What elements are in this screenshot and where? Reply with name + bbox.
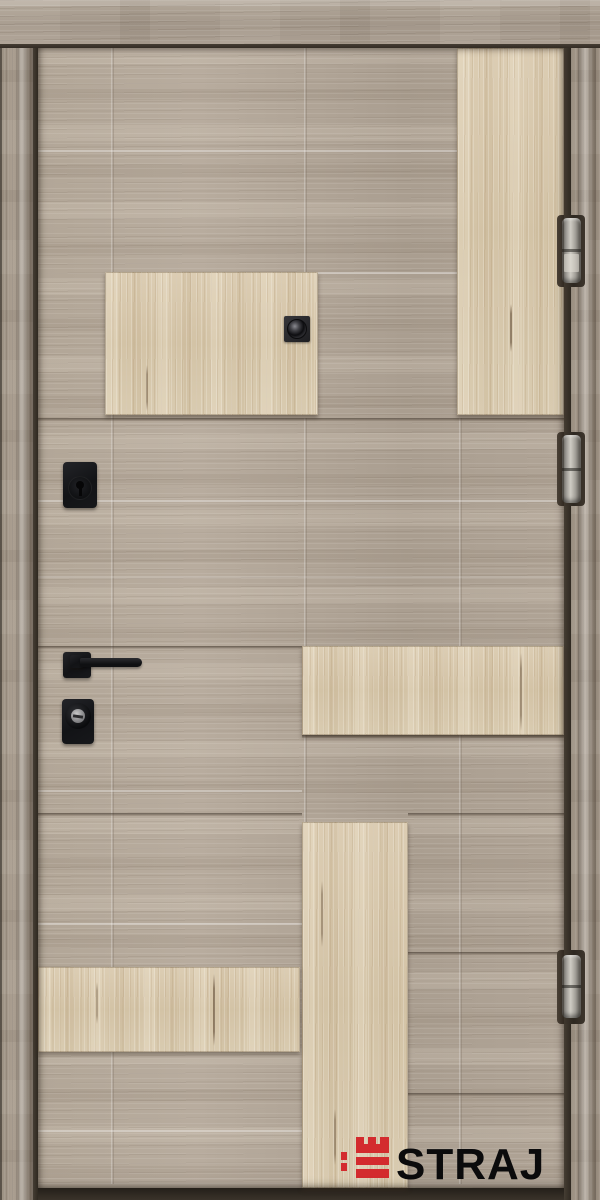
wood-crack xyxy=(146,365,148,411)
panel-groove xyxy=(304,418,307,646)
panel-groove xyxy=(459,418,462,646)
door-frame-top xyxy=(0,0,600,44)
panel-groove xyxy=(304,48,307,272)
castle-tick xyxy=(341,1163,347,1171)
hinge-middle xyxy=(562,435,581,503)
wood-crack xyxy=(321,881,323,947)
logo-text: STRAJ xyxy=(396,1143,545,1187)
threshold-shadow xyxy=(38,1188,564,1200)
hinge-seam xyxy=(562,985,581,988)
panel-groove xyxy=(304,735,307,822)
hinge-bottom xyxy=(562,955,581,1018)
wood-crack xyxy=(334,1109,336,1165)
castle-tick xyxy=(341,1152,347,1160)
deadbolt-escutcheon xyxy=(63,462,97,508)
keyhole-slot xyxy=(79,487,82,496)
castle-bar xyxy=(356,1144,389,1153)
peephole-lens xyxy=(287,319,307,339)
wood-crack xyxy=(520,653,522,731)
panel-groove xyxy=(38,500,564,502)
panel-groove xyxy=(38,418,564,421)
hinge-seam xyxy=(562,468,581,471)
brand-logo: STRAJ xyxy=(338,1134,564,1188)
panel-groove xyxy=(459,735,462,1184)
wood-crack xyxy=(213,974,215,1046)
panel-groove xyxy=(38,813,302,816)
accent-panel-top-right xyxy=(457,48,564,415)
panel-groove xyxy=(111,48,114,272)
cylinder-escutcheon xyxy=(62,699,94,744)
panel-groove xyxy=(111,1052,114,1184)
panel-groove xyxy=(302,735,564,738)
panel-groove xyxy=(38,150,457,152)
accent-panel-peephole xyxy=(105,272,318,415)
accent-panel-bottom-left xyxy=(38,967,300,1052)
hinge-top xyxy=(562,218,581,283)
door-photo: STRAJ xyxy=(0,0,600,1200)
panel-groove xyxy=(38,1130,302,1132)
panel-groove xyxy=(408,952,564,955)
panel-groove xyxy=(408,1093,564,1096)
peephole xyxy=(284,316,310,342)
panel-groove xyxy=(38,576,564,578)
handle-lever-bar xyxy=(80,658,142,667)
panel-groove xyxy=(111,415,114,967)
panel-groove xyxy=(38,923,302,925)
wood-crack xyxy=(96,982,98,1024)
panel-groove xyxy=(38,790,302,792)
door-leaf: STRAJ xyxy=(38,48,564,1188)
castle-bar xyxy=(356,1169,389,1178)
frame-top-highlight xyxy=(0,0,600,6)
frame-left-bead xyxy=(16,0,33,1200)
castle-bar xyxy=(356,1157,389,1165)
hinge-label-sticker xyxy=(564,254,579,272)
frame-left-edge xyxy=(0,0,2,1200)
wood-crack xyxy=(510,304,512,352)
hinge-seam xyxy=(562,249,581,252)
panel-groove xyxy=(408,813,564,816)
accent-panel-middle-right xyxy=(302,646,564,735)
